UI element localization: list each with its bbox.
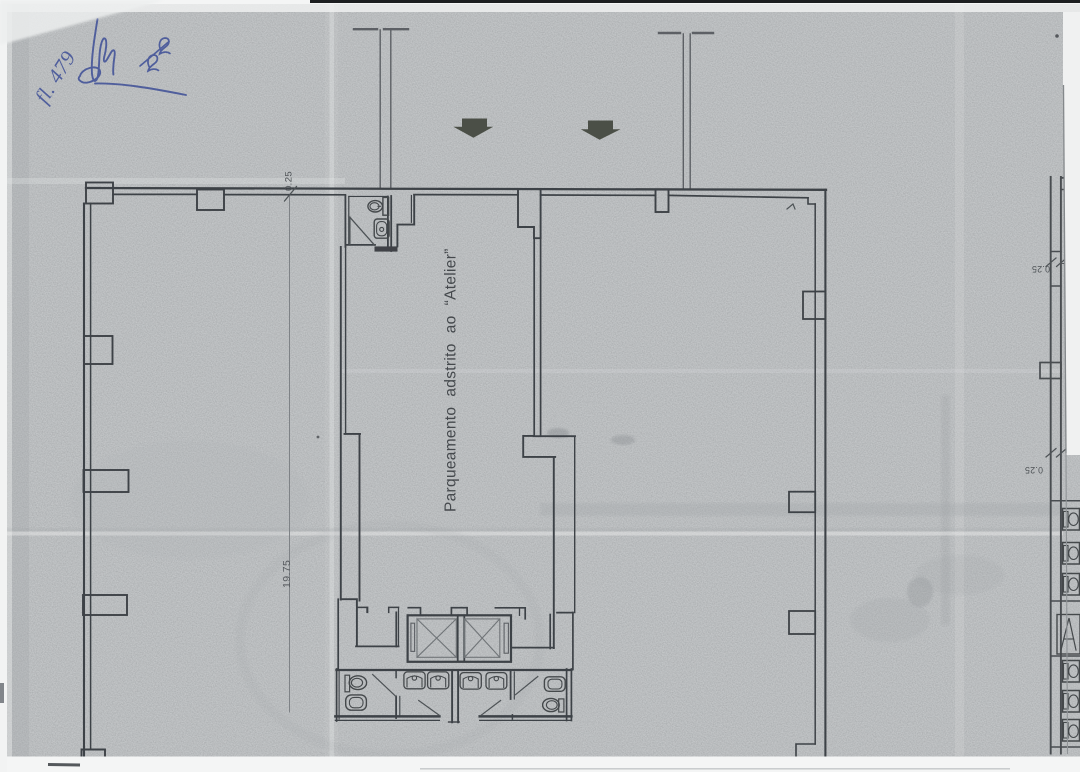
svg-text:0.25: 0.25 bbox=[1032, 264, 1050, 274]
svg-text:0.25: 0.25 bbox=[284, 171, 295, 191]
svg-text:19.75: 19.75 bbox=[281, 560, 293, 588]
svg-text:0.25: 0.25 bbox=[1025, 465, 1043, 475]
svg-text:Parqueamento adstrito ao “Atel: Parqueamento adstrito ao “Atelier” bbox=[443, 248, 460, 512]
